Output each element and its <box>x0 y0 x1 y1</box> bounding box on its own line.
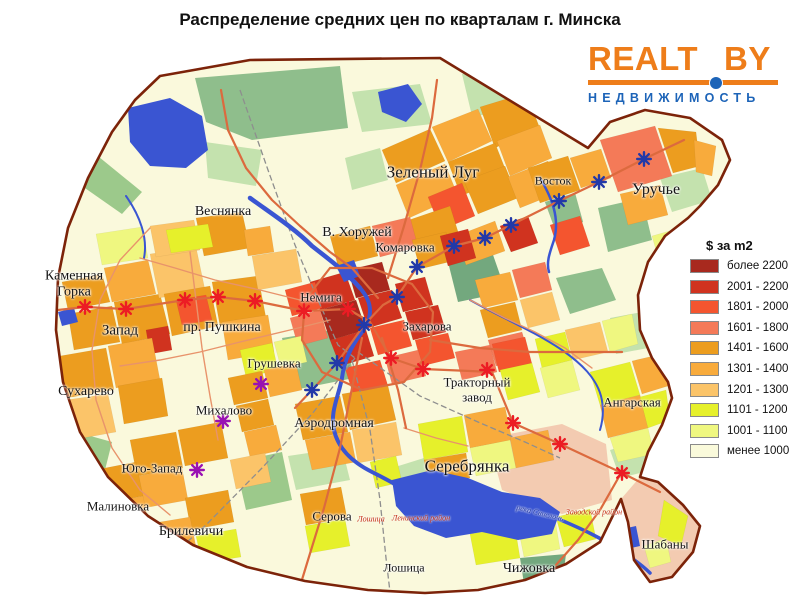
realt-by-logo: REALT BY НЕДВИЖИМОСТЬ <box>588 42 780 105</box>
price-quarter <box>101 496 149 533</box>
star-icon <box>190 463 204 477</box>
legend-label: 1601 - 1800 <box>727 322 788 334</box>
metro-station-marker-blue-line <box>410 260 424 274</box>
metro-station-marker-blue-line <box>330 356 344 370</box>
legend-swatch <box>690 403 719 417</box>
star-icon <box>341 302 355 316</box>
star-icon <box>305 383 319 397</box>
price-quarter <box>178 422 228 466</box>
star-icon <box>478 231 492 245</box>
star-icon <box>384 351 398 365</box>
logo-dot-icon <box>709 76 723 90</box>
legend-swatch <box>690 280 719 294</box>
metro-station-marker-blue-line <box>637 152 651 166</box>
legend-label: 1401 - 1600 <box>727 342 788 354</box>
minsk-price-map-page: ВеснянкаЗеленый ЛугВостокУручьеВ. Хоруже… <box>0 0 800 600</box>
star-icon <box>416 362 430 376</box>
legend-label: 1301 - 1400 <box>727 363 788 375</box>
price-quarter <box>66 394 116 440</box>
star-icon <box>504 218 518 232</box>
legend-item: 1201 - 1300 <box>690 383 800 397</box>
logo-subtitle: НЕДВИЖИМОСТЬ <box>588 91 780 105</box>
star-icon <box>357 318 371 332</box>
metro-station-marker-blue-line <box>305 383 319 397</box>
metro-station-marker-red-line <box>480 363 494 377</box>
star-icon <box>248 294 262 308</box>
logo-underline <box>588 80 778 85</box>
metro-station-marker-red-line <box>341 302 355 316</box>
legend-swatch <box>690 444 719 458</box>
star-icon <box>78 300 92 314</box>
legend-item: 2001 - 2200 <box>690 280 800 294</box>
price-quarter <box>244 226 274 256</box>
metro-station-marker-blue-line <box>390 290 404 304</box>
logo-word-by: BY <box>724 42 771 75</box>
metro-station-marker-red-line <box>384 351 398 365</box>
legend-label: 1001 - 1100 <box>727 425 788 437</box>
metro-station-marker-red-line <box>178 293 192 307</box>
metro-station-marker-red-line <box>211 290 225 304</box>
price-quarter <box>68 306 120 350</box>
metro-station-marker-red-line <box>416 362 430 376</box>
logo-wordmark: REALT BY <box>588 42 780 75</box>
legend-item: 1001 - 1100 <box>690 424 800 438</box>
star-icon <box>506 416 520 430</box>
metro-station-marker-blue-line <box>447 239 461 253</box>
metro-station-marker-blue-line <box>478 231 492 245</box>
legend-item: 1401 - 1600 <box>690 341 800 355</box>
star-icon <box>637 152 651 166</box>
star-icon <box>615 466 629 480</box>
star-icon <box>447 239 461 253</box>
metro-station-marker-red-line <box>297 304 311 318</box>
price-quarter <box>418 416 468 460</box>
star-icon <box>592 175 606 189</box>
legend-label: 2001 - 2200 <box>727 281 788 293</box>
price-quarter <box>694 140 716 176</box>
star-icon <box>552 194 566 208</box>
metro-station-marker-red-line <box>553 437 567 451</box>
star-icon <box>216 414 230 428</box>
price-quarter <box>60 348 114 398</box>
legend-swatch <box>690 300 719 314</box>
legend-swatch <box>690 259 719 273</box>
star-icon <box>254 377 268 391</box>
legend-item: 1101 - 1200 <box>690 403 800 417</box>
star-icon <box>480 363 494 377</box>
legend-item: менее 1000 <box>690 444 800 458</box>
legend-items: более 22002001 - 22001801 - 20001601 - 1… <box>690 259 800 458</box>
metro-station-marker-purple-line <box>216 414 230 428</box>
metro-station-marker-red-line <box>248 294 262 308</box>
price-quarter <box>118 378 168 424</box>
price-quarter <box>96 227 148 265</box>
legend-swatch <box>690 424 719 438</box>
legend-item: 1301 - 1400 <box>690 362 800 376</box>
legend-label: 1801 - 2000 <box>727 301 788 313</box>
price-legend: $ за m2 более 22002001 - 22001801 - 2000… <box>690 238 800 465</box>
star-icon <box>297 304 311 318</box>
metro-station-marker-red-line <box>119 302 133 316</box>
legend-title: $ за m2 <box>706 238 800 253</box>
metro-station-marker-red-line <box>78 300 92 314</box>
legend-swatch <box>690 341 719 355</box>
legend-swatch <box>690 383 719 397</box>
legend-label: более 2200 <box>727 260 788 272</box>
star-icon <box>119 302 133 316</box>
legend-item: 1801 - 2000 <box>690 300 800 314</box>
metro-station-marker-purple-line <box>254 377 268 391</box>
metro-station-marker-blue-line <box>552 194 566 208</box>
star-icon <box>410 260 424 274</box>
page-title: Распределение средних цен по кварталам г… <box>0 10 800 30</box>
park-area <box>140 552 200 578</box>
park-area <box>520 554 566 586</box>
legend-item: более 2200 <box>690 259 800 273</box>
logo-word-realt: REALT <box>588 42 698 75</box>
metro-station-marker-blue-line <box>504 218 518 232</box>
metro-station-marker-purple-line <box>190 463 204 477</box>
star-icon <box>390 290 404 304</box>
price-quarter <box>148 517 196 554</box>
legend-item: 1601 - 1800 <box>690 321 800 335</box>
legend-label: менее 1000 <box>727 445 789 457</box>
metro-station-marker-blue-line <box>592 175 606 189</box>
star-icon <box>211 290 225 304</box>
star-icon <box>178 293 192 307</box>
legend-swatch <box>690 321 719 335</box>
legend-label: 1201 - 1300 <box>727 384 788 396</box>
legend-swatch <box>690 362 719 376</box>
star-icon <box>553 437 567 451</box>
metro-station-marker-red-line <box>615 466 629 480</box>
legend-label: 1101 - 1200 <box>727 404 788 416</box>
star-icon <box>330 356 344 370</box>
metro-station-marker-red-line <box>506 416 520 430</box>
metro-station-marker-blue-line <box>357 318 371 332</box>
